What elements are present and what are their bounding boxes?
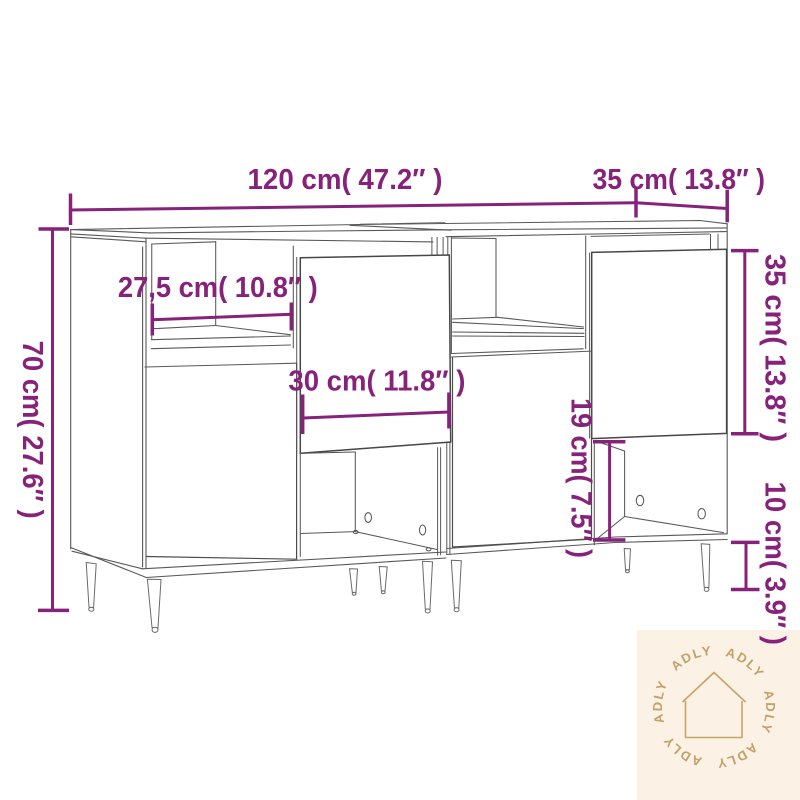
- svg-text:120 cm( 47.2″ ): 120 cm( 47.2″ ): [248, 164, 443, 196]
- svg-text:10 cm( 3.9″ ): 10 cm( 3.9″ ): [759, 482, 791, 646]
- svg-text:35 cm( 13.8″ ): 35 cm( 13.8″ ): [758, 254, 790, 442]
- svg-text:19 cm( 7.5″ ): 19 cm( 7.5″ ): [565, 398, 597, 558]
- svg-text:30 cm( 11.8″ ): 30 cm( 11.8″ ): [288, 365, 465, 397]
- svg-text:27,5 cm( 10.8″ ): 27,5 cm( 10.8″ ): [118, 272, 318, 304]
- svg-text:35 cm( 13.8″ ): 35 cm( 13.8″ ): [593, 164, 766, 196]
- svg-text:70 cm( 27.6″ ): 70 cm( 27.6″ ): [16, 341, 48, 519]
